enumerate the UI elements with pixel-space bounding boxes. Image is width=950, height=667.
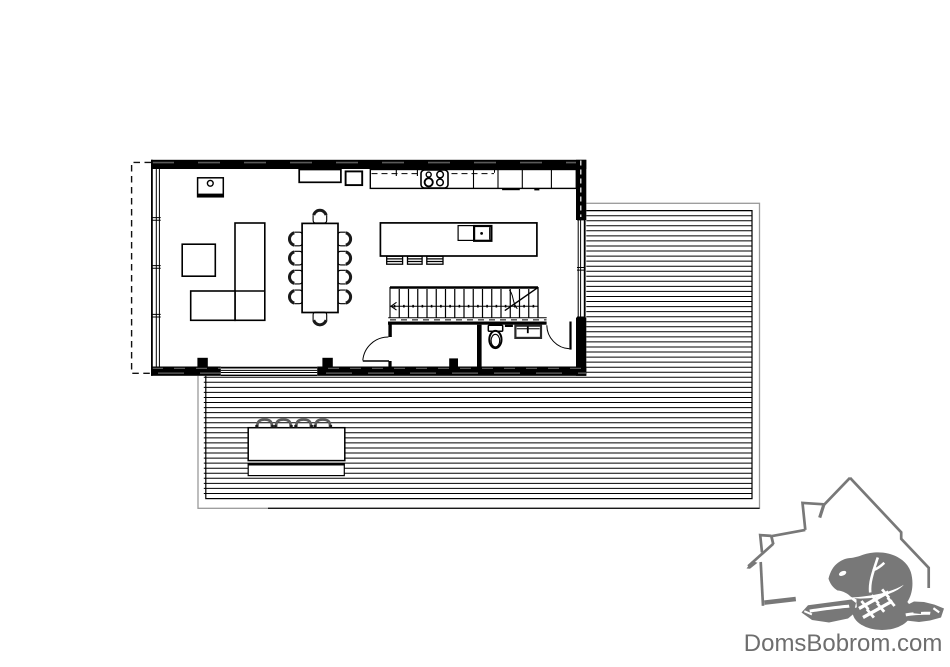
svg-text:DomsBobrom.com: DomsBobrom.com — [744, 630, 943, 657]
